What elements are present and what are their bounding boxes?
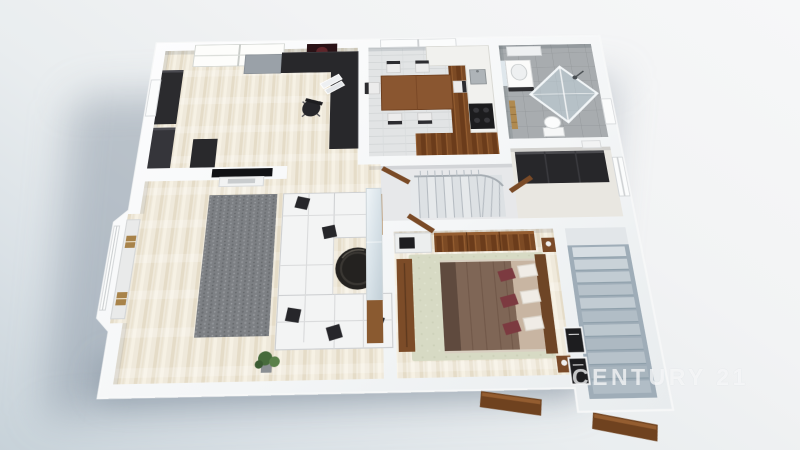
room-bedroom [393,211,573,379]
tv-wall [210,168,272,187]
mirrored-wardrobe [366,188,383,343]
winder-staircase [410,169,506,218]
room-office [137,43,358,169]
linen-stack [582,141,602,148]
corridor [287,164,381,179]
corner-unit [395,233,432,253]
double-bed [440,254,559,356]
bedroom-tv [399,237,415,248]
floor-plan-render: CENTURY 21 [0,0,800,450]
century21-watermark: CENTURY 21 [572,364,749,391]
bath-shelf [506,46,541,56]
landing [565,227,629,245]
bookcase-corner [190,139,218,168]
office-sideboard [244,54,282,73]
stove [469,103,495,129]
room-kitchen-dining [365,38,500,156]
wood-cabinet [367,300,384,343]
